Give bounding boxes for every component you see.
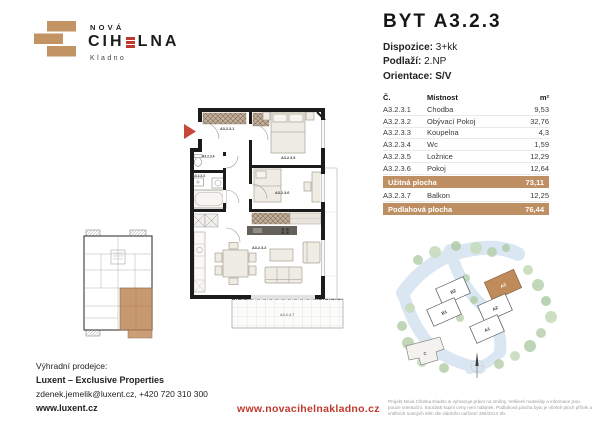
contact-block: Výhradní prodejce: Luxent – Exclusive Pr… bbox=[36, 359, 208, 415]
site-url-link[interactable]: www.novacihelnakladno.cz bbox=[237, 403, 380, 415]
contact-company: Luxent – Exclusive Properties bbox=[36, 373, 208, 387]
table-row: A3.2.3.4Wc1,59 bbox=[383, 139, 549, 151]
table-row-balkon: A3.2.3.7Balkon12,25 bbox=[383, 190, 549, 202]
site-plan: B2 B1 A3 A2 A1 bbox=[388, 238, 584, 391]
contact-email-phone[interactable]: zdenek.jemelik@luxent.cz, +420 720 310 3… bbox=[36, 387, 208, 401]
entrance-arrow-icon bbox=[184, 124, 196, 139]
flat-specs: Dispozice: 3+kk Podlaží: 2.NP Orientace:… bbox=[383, 38, 457, 82]
table-row: A3.2.3.6Pokoj12,64 bbox=[383, 163, 549, 175]
hall-wardrobe bbox=[192, 214, 218, 227]
brand-name-pre: CIH bbox=[88, 33, 125, 51]
table-row: A3.2.3.1Chodba9,53 bbox=[383, 104, 549, 116]
flyer-page: NOVÁ CIHLNA Kladno BYT A3.2.3 Dispozice:… bbox=[0, 0, 600, 423]
logo bbox=[34, 20, 80, 65]
floor-area-bar: Podlahová plocha76,44 bbox=[383, 203, 549, 215]
table-row: A3.2.3.3Koupelna4,3 bbox=[383, 128, 549, 140]
contact-web-link[interactable]: www.luxent.cz bbox=[36, 401, 208, 415]
svg-text:C: C bbox=[423, 351, 426, 356]
room-table: Č. Místnost m² A3.2.3.1Chodba9,53 A3.2.3… bbox=[383, 90, 549, 217]
brand-city: Kladno bbox=[90, 55, 126, 62]
room-label-wc: A3.2.3.4 bbox=[202, 155, 215, 159]
flat-title: BYT A3.2.3 bbox=[383, 11, 502, 33]
brick-e-icon bbox=[126, 37, 135, 48]
floor-plan: A3.2.3.1 A3.2.3.4 A3.2.3.3 A3.2.3.5 A3.2… bbox=[183, 96, 353, 341]
room-table-header: Č. Místnost m² bbox=[383, 90, 549, 104]
brand-top-label: NOVÁ bbox=[90, 23, 124, 32]
table-row: A3.2.3.5Ložnice12,29 bbox=[383, 151, 549, 163]
spec-dispozice: Dispozice: 3+kk bbox=[383, 42, 457, 53]
room-label-obyvaci: A3.2.3.2 bbox=[252, 246, 266, 250]
room-label-balkon: A3.2.3.7 bbox=[280, 313, 294, 317]
brand-name: CIHLNA bbox=[88, 33, 179, 51]
building-b1: B1 bbox=[427, 298, 462, 327]
brand-bricks-icon bbox=[34, 20, 80, 60]
spec-podlazi: Podlaží: 2.NP bbox=[383, 56, 457, 67]
room-label-loznice: A3.2.3.5 bbox=[281, 156, 295, 160]
usable-area-bar: Užitná plocha73,11 bbox=[383, 176, 549, 188]
room-label-pokoj: A3.2.3.6 bbox=[275, 191, 289, 195]
room-label-koupelna: A3.2.3.3 bbox=[193, 174, 206, 178]
spec-orientace: Orientace: S/V bbox=[383, 71, 457, 82]
table-row: A3.2.3.2Obývací Pokoj32,76 bbox=[383, 116, 549, 128]
compass-icon bbox=[469, 352, 485, 378]
brand-name-post: LNA bbox=[138, 33, 180, 51]
key-plan bbox=[78, 226, 162, 349]
disclaimer-text: Projekt Nová Cihelna Kladno si vyhrazuje… bbox=[388, 399, 593, 417]
room-label-chodba: A3.2.3.1 bbox=[220, 127, 234, 131]
contact-intro: Výhradní prodejce: bbox=[36, 359, 208, 373]
